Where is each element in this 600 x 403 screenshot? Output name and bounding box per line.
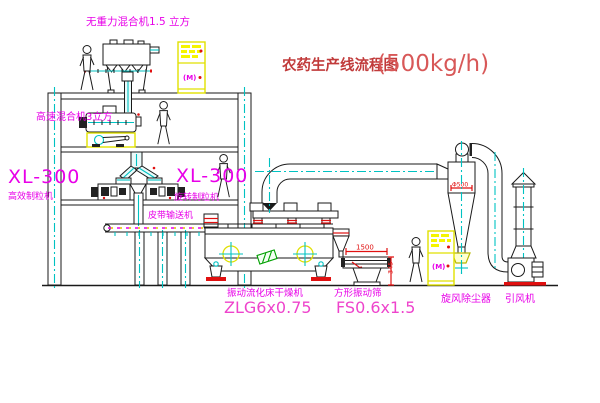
dim-sieve-height: 345 [387, 262, 395, 274]
person-floor2 [157, 101, 170, 144]
label-granulator-left-name: 高效制粒机 [8, 190, 53, 202]
y-chute [116, 152, 162, 185]
label-fan: 引风机 [505, 292, 535, 305]
vibrating-sieve: 1500 345 [341, 244, 395, 286]
gravity-free-mixer [84, 40, 159, 113]
label-high-speed-mixer: 高速混合机3立方 [36, 110, 112, 123]
person-ground [409, 238, 423, 283]
label-sieve-model: FS0.6x1.5 [336, 298, 415, 317]
page-title-capacity: (500kg/h) [377, 51, 489, 77]
label-granulator-right-model: XL-300 [176, 165, 248, 187]
dim-sieve-length: 1500 [356, 244, 374, 252]
dim-cyclone-diameter: Φ500 [452, 182, 468, 189]
induced-draft-fan [504, 258, 546, 286]
cad-drawing: (M) [0, 0, 600, 403]
person-roof [80, 46, 94, 91]
granulator-left [91, 184, 130, 200]
control-cabinet-2: (M) [428, 231, 454, 285]
label-belt-conveyor: 皮带输送机 [148, 209, 193, 221]
fluid-bed-dryer [204, 203, 349, 281]
cabinet1-display: (M) [183, 74, 196, 82]
cabinet2-display: (M) [432, 263, 445, 271]
cyclone-fan-duct [472, 144, 508, 273]
control-cabinet-1: (M) [178, 42, 205, 93]
label-granulator-right-name: 旋转制粒机 [174, 191, 219, 203]
label-dryer-model: ZLG6x0.75 [224, 298, 312, 317]
label-granulator-left-model: XL-300 [8, 166, 80, 188]
label-gravity-mixer: 无重力混合机1.5 立方 [86, 15, 190, 28]
label-cyclone: 旋风除尘器 [441, 292, 491, 305]
